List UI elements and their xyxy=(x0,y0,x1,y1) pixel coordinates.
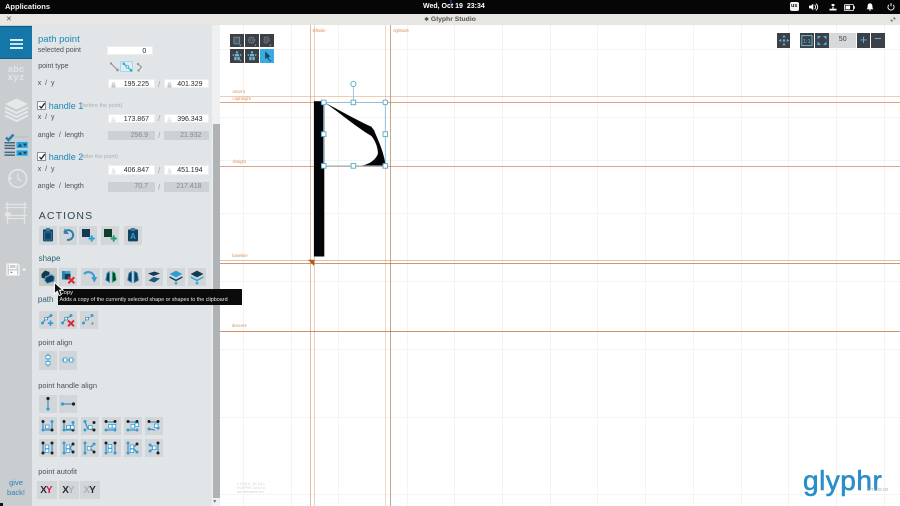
svg-text:1:1: 1:1 xyxy=(803,39,811,45)
svg-text:A: A xyxy=(130,232,136,241)
